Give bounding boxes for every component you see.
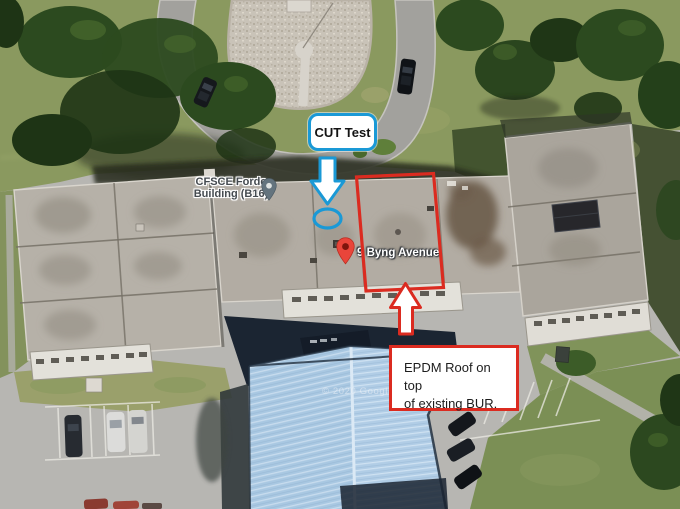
car (106, 412, 125, 453)
cut-test-label: CUT Test (314, 125, 370, 140)
car (113, 501, 139, 509)
car (64, 415, 82, 458)
building-pin-icon[interactable] (261, 178, 277, 201)
address-map-label: 9 Byng Avenue (357, 247, 439, 259)
epdm-note-line1: EPDM Roof on top (404, 359, 512, 395)
epdm-note-line2: of existing BUR. (404, 395, 512, 413)
car (128, 410, 147, 454)
epdm-note-box: EPDM Roof on top of existing BUR. (389, 345, 519, 411)
satellite-map[interactable]: © 2020 Google CFSCE Forde Building (B16)… (0, 0, 680, 509)
car (84, 498, 108, 509)
car (142, 503, 162, 509)
map-watermark: © 2020 Google (322, 386, 394, 397)
address-pin-icon[interactable] (336, 237, 355, 265)
cut-test-callout: CUT Test (308, 113, 377, 151)
